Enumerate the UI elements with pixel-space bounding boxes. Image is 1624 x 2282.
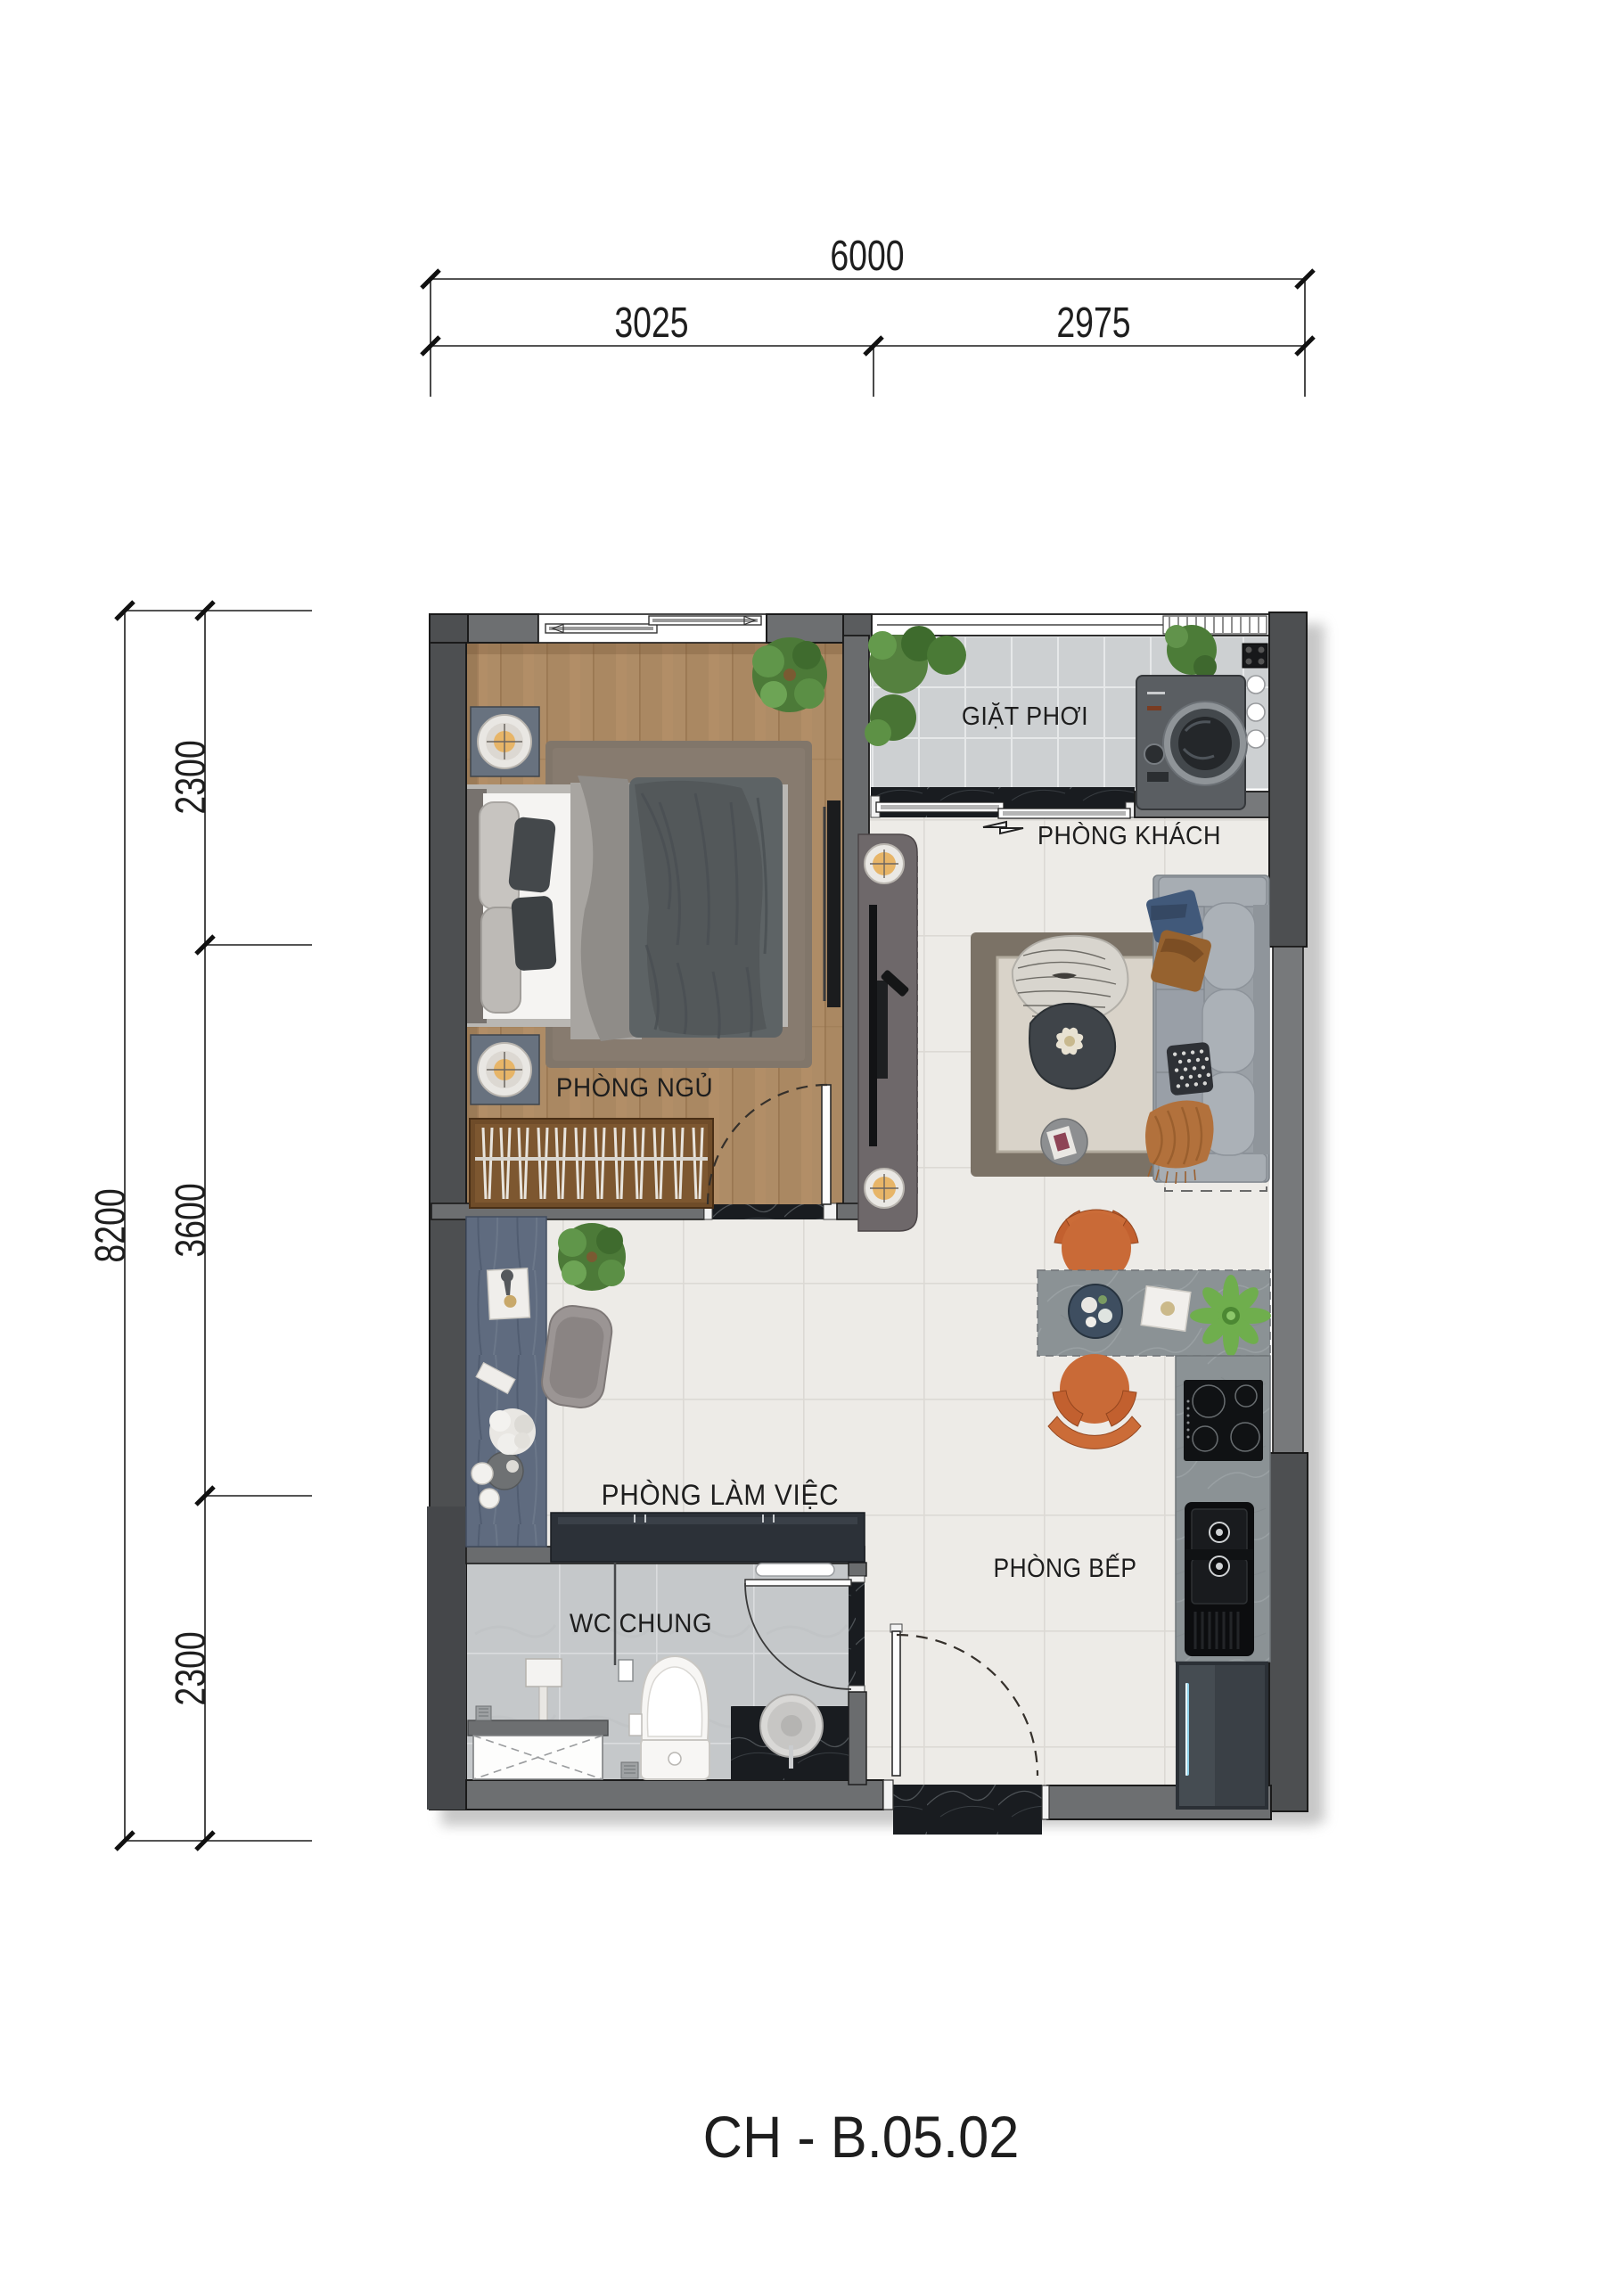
svg-text:WC CHUNG: WC CHUNG (570, 1609, 712, 1638)
svg-text:3600: 3600 (168, 1183, 216, 1257)
svg-text:PHÒNG BẾP: PHÒNG BẾP (994, 1552, 1137, 1582)
svg-text:2300: 2300 (168, 1631, 216, 1705)
svg-text:CH - B.05.02: CH - B.05.02 (703, 2104, 1020, 2171)
svg-text:2300: 2300 (168, 740, 216, 814)
svg-text:PHÒNG KHÁCH: PHÒNG KHÁCH (1038, 821, 1221, 850)
svg-text:2975: 2975 (1056, 300, 1130, 348)
svg-text:PHÒNG NGỦ: PHÒNG NGỦ (556, 1071, 713, 1103)
svg-text:3025: 3025 (614, 300, 688, 348)
svg-text:8200: 8200 (87, 1188, 135, 1262)
svg-text:GIẶT PHƠI: GIẶT PHƠI (962, 702, 1088, 730)
svg-text:PHÒNG LÀM VIỆC: PHÒNG LÀM VIỆC (602, 1479, 840, 1511)
svg-text:6000: 6000 (830, 233, 904, 281)
